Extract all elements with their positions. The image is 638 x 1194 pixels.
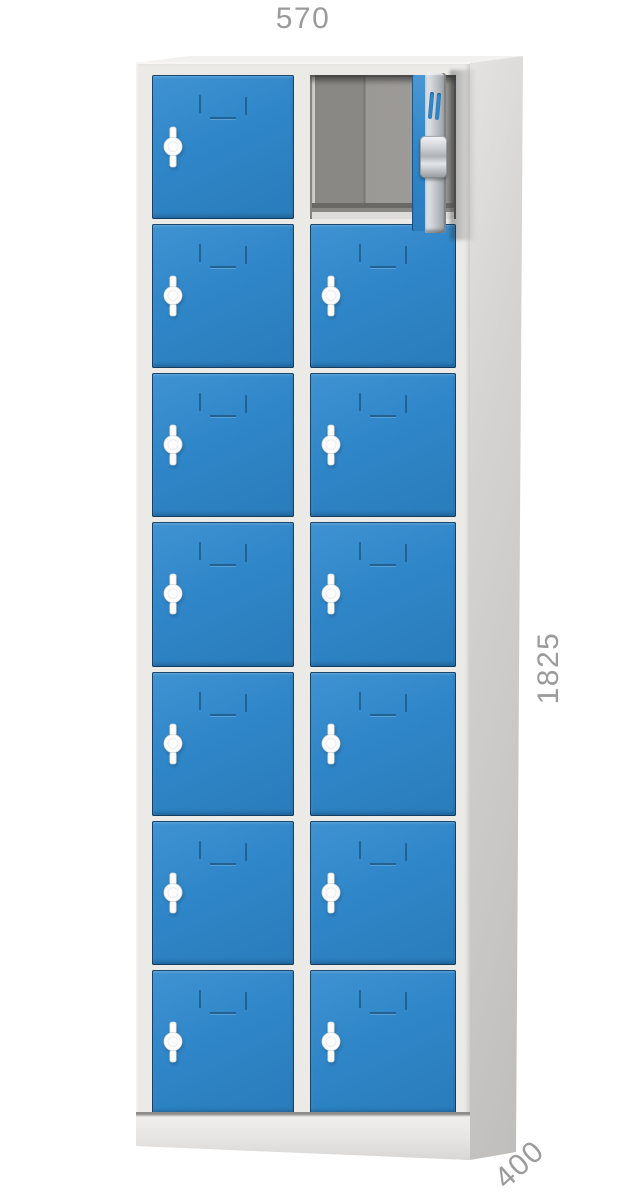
door-lock-icon (420, 136, 447, 178)
vent-slot-icon (435, 93, 441, 120)
cabinet-side-panel (470, 56, 524, 1162)
locker-door (310, 224, 456, 368)
locker-door (152, 970, 294, 1114)
open-door-shadow (450, 70, 476, 240)
door-handle-icon (321, 275, 341, 317)
label-slot-emboss (359, 393, 407, 417)
locker-door (152, 224, 294, 368)
locker-door (152, 522, 294, 666)
door-handle-icon (321, 723, 341, 765)
locker-product-render: 570 1825 400 (0, 0, 638, 1194)
door-handle-icon (321, 573, 341, 615)
cabinet-plinth (136, 1112, 470, 1160)
door-handle-icon (321, 1021, 341, 1063)
label-slot-emboss (359, 542, 407, 566)
label-slot-emboss (359, 990, 407, 1014)
locker-door (152, 373, 294, 517)
label-slot-emboss (199, 244, 247, 268)
label-slot-emboss (199, 841, 247, 865)
label-slot-emboss (359, 841, 407, 865)
label-slot-emboss (199, 95, 247, 119)
door-handle-icon (163, 723, 183, 765)
door-handle-icon (163, 1021, 183, 1063)
door-handle-icon (321, 872, 341, 914)
locker-door (310, 672, 456, 816)
locker-door (152, 821, 294, 965)
label-slot-emboss (199, 542, 247, 566)
open-door-edge (412, 73, 452, 233)
door-handle-icon (163, 872, 183, 914)
dimension-width-label: 570 (136, 4, 470, 34)
label-slot-emboss (199, 393, 247, 417)
label-slot-emboss (359, 692, 407, 716)
locker-door (310, 970, 456, 1114)
label-slot-emboss (359, 244, 407, 268)
label-slot-emboss (199, 692, 247, 716)
door-handle-icon (163, 573, 183, 615)
locker-door (310, 373, 456, 517)
locker-door (310, 821, 456, 965)
door-handle-icon (163, 275, 183, 317)
door-handle-icon (321, 424, 341, 466)
vent-slot-icon (428, 92, 434, 119)
dimension-height-label: 1825 (534, 608, 564, 728)
label-slot-emboss (199, 990, 247, 1014)
door-handle-icon (163, 424, 183, 466)
locker-door (152, 75, 294, 219)
locker-door (310, 522, 456, 666)
door-handle-icon (163, 126, 183, 168)
locker-door (152, 672, 294, 816)
locker-grid (152, 75, 456, 1114)
